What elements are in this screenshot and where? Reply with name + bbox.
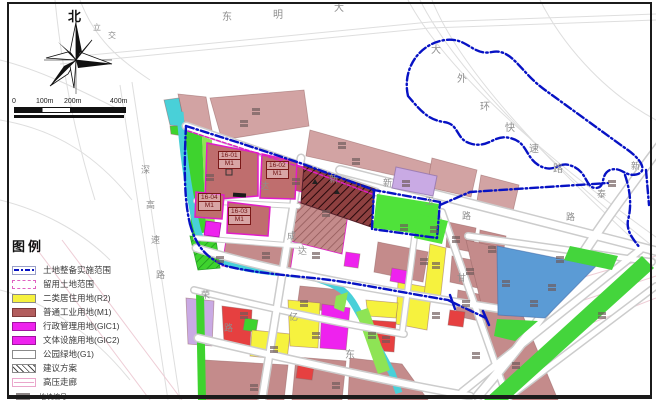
- legend-item-label: 普通工业用地(M1): [43, 306, 111, 318]
- legend-swatch-g1: [12, 350, 36, 359]
- road-name-char: 明: [273, 11, 283, 21]
- road-name-char: 路: [566, 213, 575, 222]
- road-name-char: 大: [334, 4, 344, 14]
- parcel-mark: [466, 268, 474, 276]
- legend-swatch-retained: [12, 280, 36, 289]
- scale-bar-base: [14, 115, 124, 118]
- road-name-char: 亿: [289, 313, 298, 322]
- legend-item-label: 高压走廊: [43, 376, 77, 388]
- legend-item: 行政管理用地(GIC1): [12, 319, 162, 333]
- legend-item: 留用土地范围: [12, 277, 162, 291]
- parcel-code: 16-01: [219, 152, 240, 160]
- north-label: 北: [68, 6, 81, 25]
- scale-tick: 100m: [36, 98, 54, 105]
- legend-swatch-gic2: [12, 336, 36, 345]
- legend-swatch-boundary: [12, 266, 36, 275]
- legend-item-label: 二类居住用地(R2): [43, 292, 111, 304]
- legend-item-label: 建议方案: [43, 362, 77, 374]
- parcel-mark: [332, 382, 340, 390]
- parcel-mark: [250, 384, 258, 392]
- parcel-mark: [400, 224, 408, 232]
- parcel-mark: [598, 312, 606, 320]
- legend-swatch-m1: [12, 308, 36, 317]
- road-name-char: 高: [146, 201, 155, 210]
- road-name-char: 路: [462, 212, 471, 221]
- parcel-code-top: 地块编号: [37, 393, 69, 400]
- parcel-mark: [430, 226, 438, 234]
- road-name-char: 玉: [425, 197, 434, 206]
- road-name-char: 达: [260, 182, 269, 191]
- road-name-char: 甘: [457, 274, 466, 283]
- scale-ticks: 0 100m 200m 400m: [12, 98, 132, 107]
- road-name-char: 东: [345, 351, 355, 361]
- parcel-mark: [432, 312, 440, 320]
- road-name-char: 达: [298, 247, 307, 256]
- legend-item-label: 留用土地范围: [43, 278, 94, 290]
- legend-item: 建议方案: [12, 361, 162, 375]
- parcel-mark: [368, 332, 376, 340]
- parcel-mark: [432, 262, 440, 270]
- parcel-mark: [322, 210, 330, 218]
- legend-item-label: 公园绿地(G1): [43, 348, 94, 360]
- parcel-use-code: M1: [223, 160, 236, 167]
- legend-item-label: 文体设施用地(GIC2): [43, 334, 120, 346]
- legend-title: 图例: [12, 236, 162, 255]
- road-name-char: 新: [329, 175, 338, 184]
- legend-item-label: 土地整备实施范围: [43, 264, 111, 276]
- road-name-char: 外: [457, 75, 467, 85]
- parcel-mark: [240, 312, 248, 320]
- parcel-mark: [512, 362, 520, 370]
- road-name-char: 路: [224, 324, 233, 333]
- legend-item: 土地整备实施范围: [12, 263, 162, 277]
- parcel-mark: [312, 332, 320, 340]
- road-name-char: 泰: [597, 190, 606, 199]
- road-name-char: 东: [222, 13, 232, 23]
- planning-map-page: 北 0 100m 200m 400m 图例 土地整备实: [0, 0, 656, 400]
- parcel-use-code: M1: [203, 202, 216, 209]
- parcel-code-fraction: 地块编号 用地性质代码: [37, 393, 83, 400]
- parcel-code: 16-02: [267, 162, 288, 170]
- legend-swatch-r2: [12, 294, 36, 303]
- road-name-char: 快: [505, 124, 515, 134]
- parcel-code: 16-03: [229, 208, 250, 216]
- parcel-mark: [472, 352, 480, 360]
- road-name-char: 新: [383, 179, 392, 188]
- parcel-mark: [300, 300, 308, 308]
- parcel-code: 16-04: [199, 194, 220, 202]
- parcel-mark: [312, 252, 320, 260]
- road-name-char: 大: [431, 46, 441, 56]
- parcel-label-16-02: 16-02M1: [266, 161, 289, 179]
- legend-item: 高压走廊: [12, 375, 162, 389]
- legend: 图例 土地整备实施范围留用土地范围二类居住用地(R2)普通工业用地(M1)行政管…: [12, 236, 162, 400]
- parcel-label-16-01: 16-01M1: [218, 151, 241, 169]
- road-name-char: 成: [287, 232, 296, 241]
- scale-tick: 400m: [110, 98, 128, 105]
- parcel-mark: [608, 180, 616, 188]
- legend-items: 土地整备实施范围留用土地范围二类居住用地(R2)普通工业用地(M1)行政管理用地…: [12, 263, 162, 389]
- parcel-label-16-03: 16-03M1: [228, 207, 251, 225]
- legend-parcel-code-item: 地块编号 用地性质代码: [12, 393, 162, 400]
- legend-item: 文体设施用地(GIC2): [12, 333, 162, 347]
- scale-tick: 0: [12, 98, 16, 105]
- parcel-mark: [488, 246, 496, 254]
- road-name-char: 深: [141, 166, 150, 175]
- legend-item: 二类居住用地(R2): [12, 291, 162, 305]
- parcel-mark: [262, 252, 270, 260]
- parcel-mark: [252, 108, 260, 116]
- parcel-mark: [206, 174, 214, 182]
- parcel-mark: [338, 142, 346, 150]
- scale-tick: 200m: [64, 98, 82, 105]
- scale-bar-segments: [14, 107, 126, 113]
- road-name-char: 路: [553, 165, 563, 175]
- parcel-label-16-04: 16-04M1: [198, 193, 221, 211]
- legend-swatch-hatch: [12, 364, 36, 373]
- parcel-mark: [352, 158, 360, 166]
- scale-bar: 0 100m 200m 400m: [12, 98, 132, 118]
- road-name-char: 速: [529, 145, 539, 155]
- parcel-mark: [382, 336, 390, 344]
- parcel-mark: [502, 280, 510, 288]
- parcel-mark: [270, 346, 278, 354]
- parcel-mark: [240, 120, 248, 128]
- parcel-mark: [462, 300, 470, 308]
- legend-swatch-corridor: [12, 378, 36, 387]
- legend-item-label: 行政管理用地(GIC1): [43, 320, 120, 332]
- road-name-char: 荣: [201, 291, 210, 300]
- road-name-char: 新: [631, 162, 640, 171]
- parcel-use-code: M1: [233, 216, 246, 223]
- parcel-mark: [530, 300, 538, 308]
- legend-item: 普通工业用地(M1): [12, 305, 162, 319]
- parcel-mark: [548, 284, 556, 292]
- parcel-mark: [420, 258, 428, 266]
- road-name-char: 环: [480, 103, 490, 113]
- legend-swatch-gic1: [12, 322, 36, 331]
- parcel-mark: [402, 180, 410, 188]
- legend-item: 公园绿地(G1): [12, 347, 162, 361]
- parcel-mark: [292, 178, 300, 186]
- parcel-use-code: M1: [271, 170, 284, 177]
- parcel-mark: [216, 256, 224, 264]
- compass-rose: 北: [40, 6, 116, 102]
- parcel-code-sample-icon: [16, 393, 30, 400]
- parcel-mark: [556, 256, 564, 264]
- parcel-mark: [452, 236, 460, 244]
